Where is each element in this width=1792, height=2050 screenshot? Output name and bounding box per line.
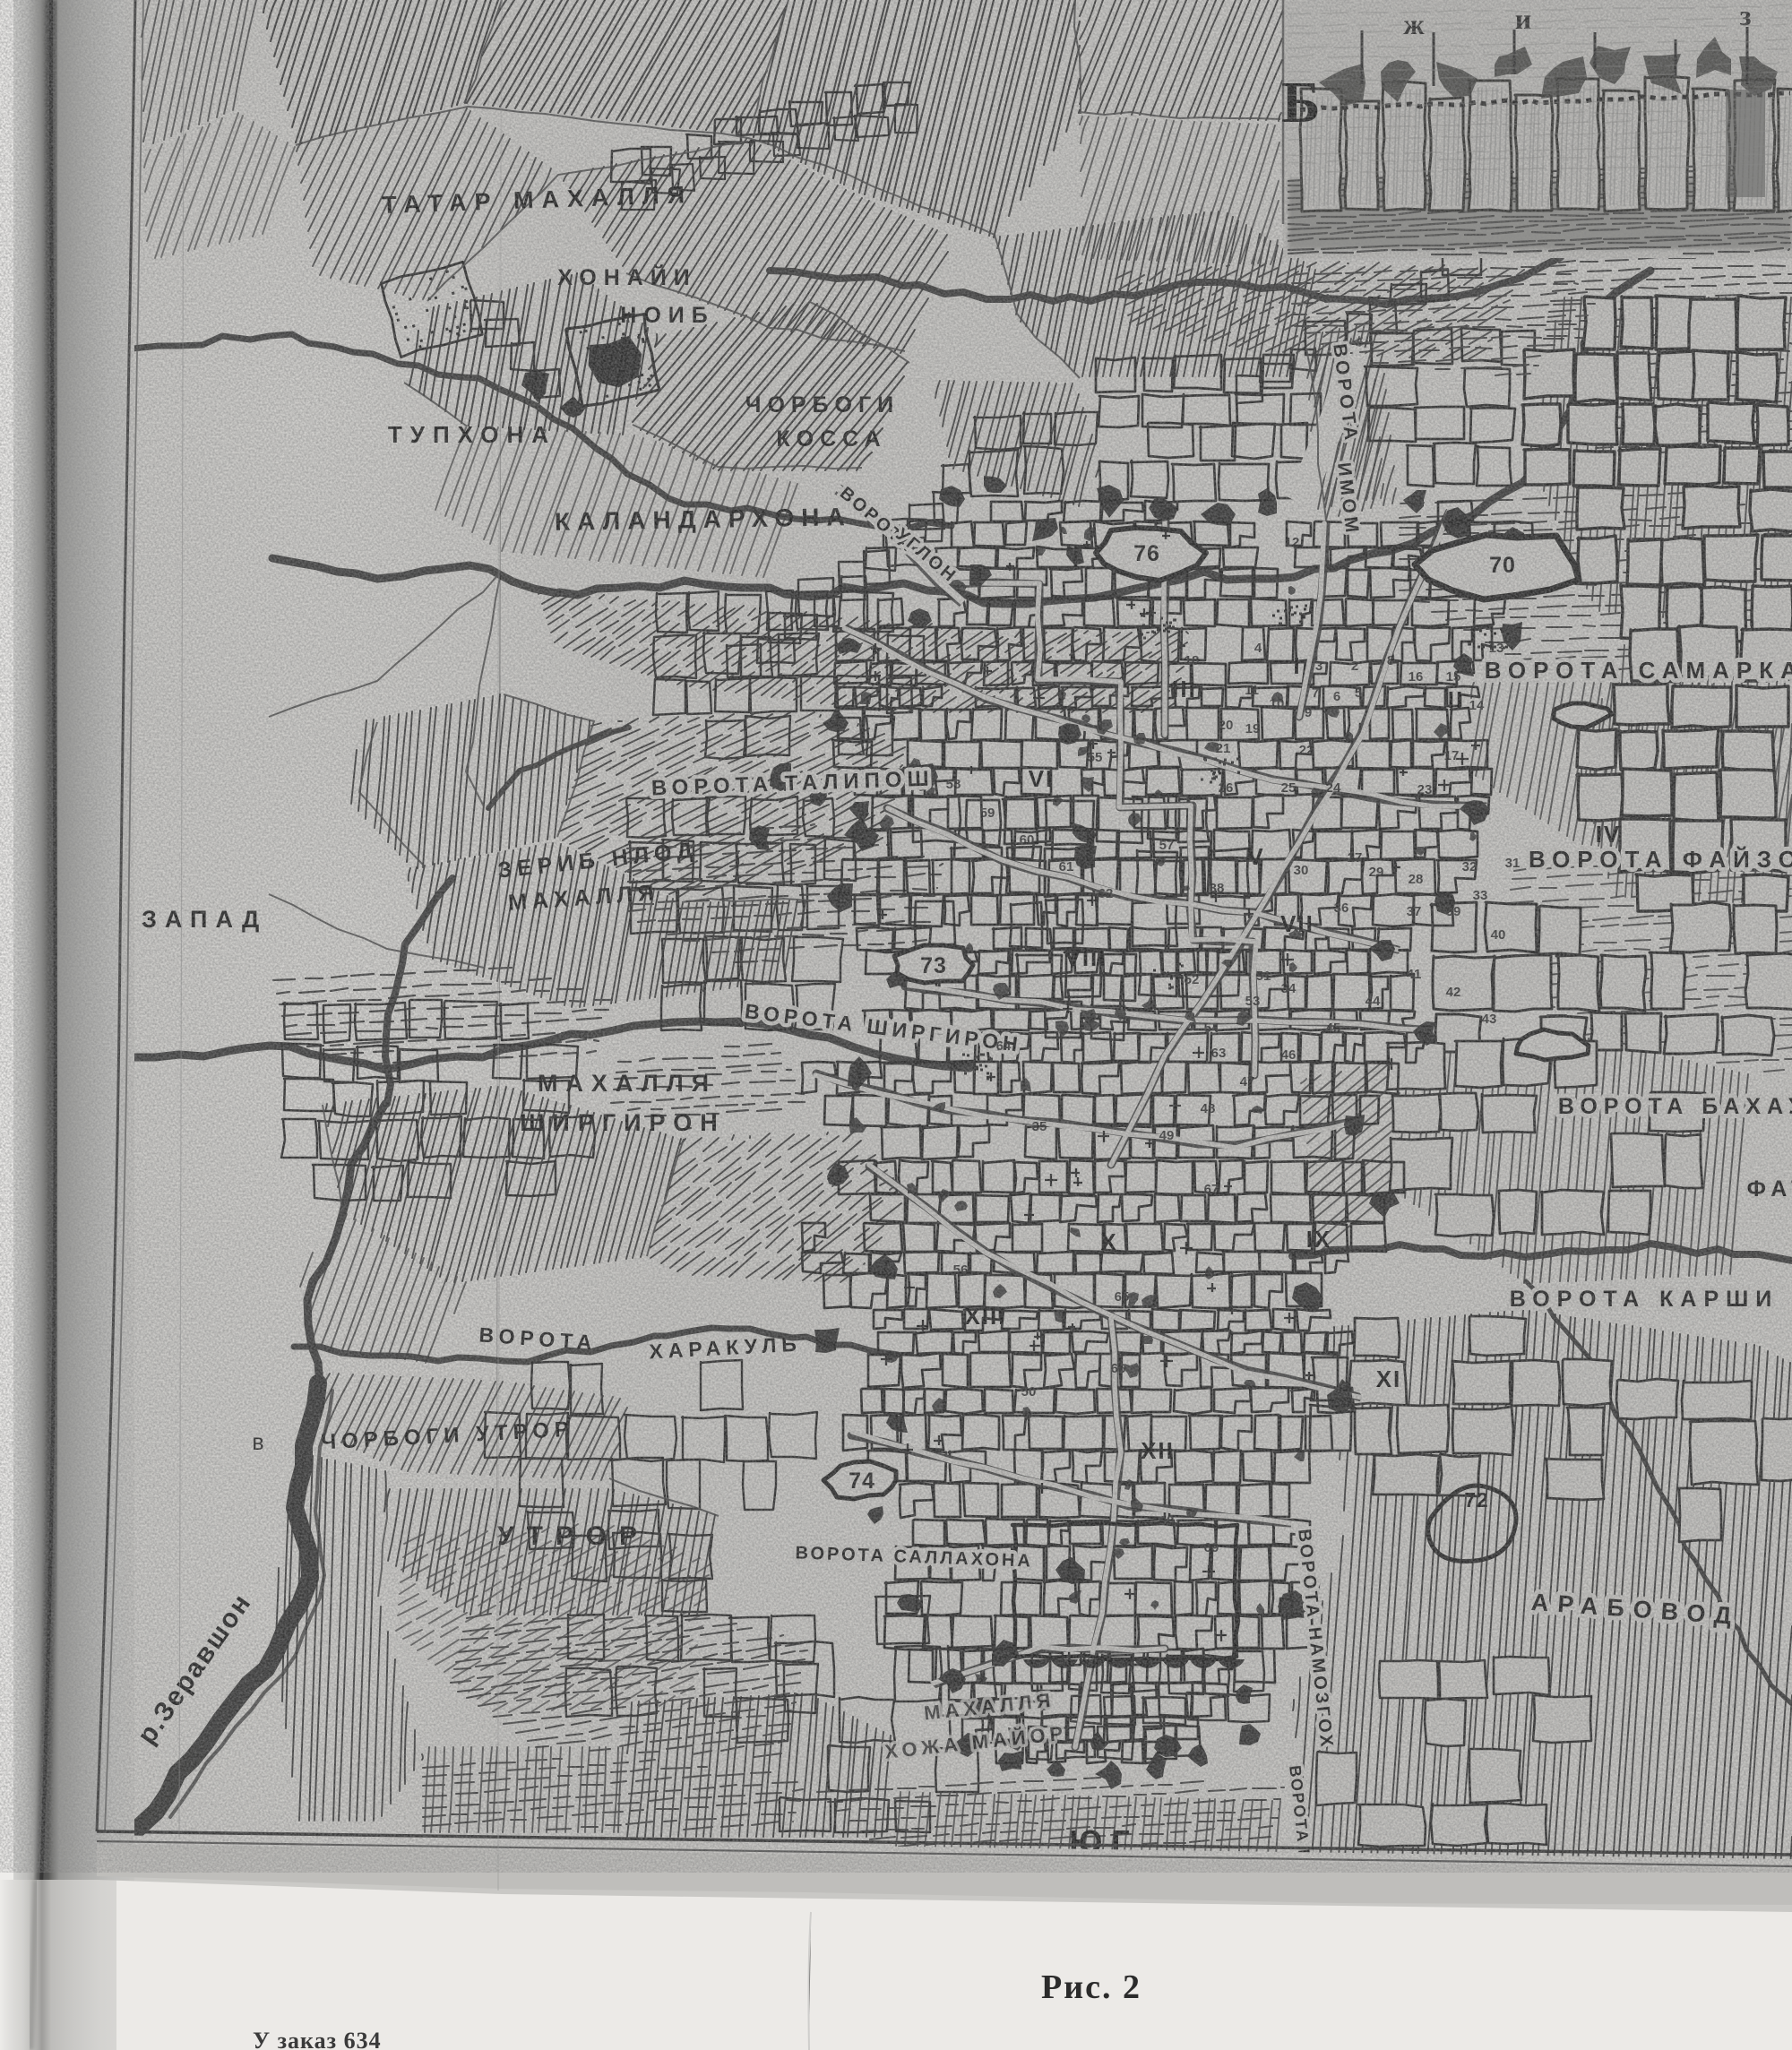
svg-text:У заказ 634: У заказ 634 xyxy=(253,2028,382,2050)
svg-text:Рис. 2: Рис. 2 xyxy=(1041,1968,1142,2006)
